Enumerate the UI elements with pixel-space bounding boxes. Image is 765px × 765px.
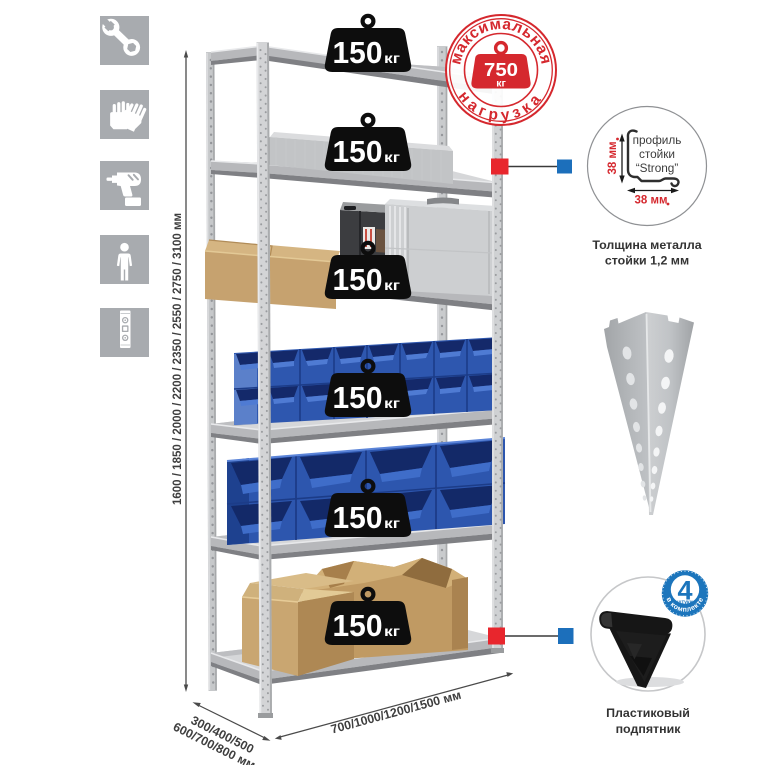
svg-text:38 мм: 38 мм — [607, 141, 619, 174]
svg-text:кг: кг — [384, 51, 400, 66]
svg-text:38 мм: 38 мм — [634, 195, 667, 207]
svg-text:кг: кг — [384, 516, 400, 531]
svg-text:1600 / 1850 / 2000 / 2200 / 23: 1600 / 1850 / 2000 / 2200 / 2350 / 2550 … — [172, 213, 184, 505]
svg-text:150: 150 — [333, 500, 383, 535]
svg-text:Толщина металла: Толщина металла — [592, 238, 701, 252]
svg-text:кг: кг — [384, 150, 400, 165]
svg-text:кг: кг — [384, 278, 400, 293]
svg-text:стойки: стойки — [639, 147, 675, 161]
svg-text:150: 150 — [333, 262, 383, 297]
svg-text:“Strong”: “Strong” — [636, 161, 679, 175]
svg-text:150: 150 — [333, 134, 383, 169]
svg-text:150: 150 — [333, 608, 383, 643]
svg-text:150: 150 — [333, 380, 383, 415]
svg-text:700/1000/1200/1500 мм: 700/1000/1200/1500 мм — [329, 688, 462, 737]
svg-text:кг: кг — [384, 624, 400, 639]
svg-text:кг: кг — [384, 396, 400, 411]
svg-text:кг: кг — [496, 78, 506, 90]
svg-text:150: 150 — [333, 35, 383, 70]
svg-text:штуки: штуки — [677, 600, 693, 606]
svg-text:Пластиковый: Пластиковый — [606, 706, 690, 720]
svg-text:подпятник: подпятник — [616, 722, 682, 736]
svg-text:профиль: профиль — [633, 133, 682, 147]
svg-text:стойки 1,2 мм: стойки 1,2 мм — [605, 254, 689, 268]
